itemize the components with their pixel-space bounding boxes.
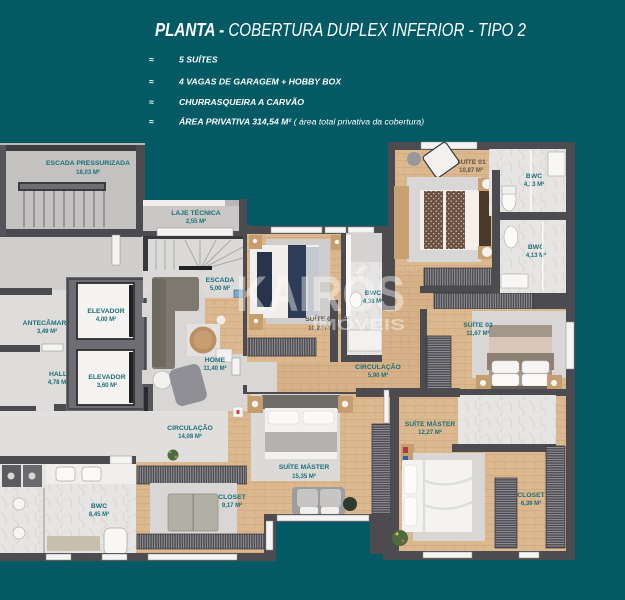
svg-text:11,40 M²: 11,40 M² — [203, 365, 226, 372]
svg-text:BWC: BWC — [526, 173, 542, 180]
svg-text:8,45 M²: 8,45 M² — [89, 511, 109, 518]
svg-text:4,00 M²: 4,00 M² — [96, 316, 116, 323]
svg-text:ESCADA: ESCADA — [206, 277, 235, 284]
svg-text:SUÍTE 01: SUÍTE 01 — [456, 157, 486, 166]
svg-text:ÁREA PRIVATIVA 314,54 M² ( áre: ÁREA PRIVATIVA 314,54 M² ( área total pr… — [178, 117, 424, 127]
svg-text:CLOSET: CLOSET — [517, 492, 545, 499]
svg-text:4,78 M²: 4,78 M² — [48, 379, 68, 386]
svg-text:≈: ≈ — [149, 97, 154, 107]
svg-text:≈: ≈ — [149, 55, 154, 65]
svg-text:KAIRÓS: KAIRÓS — [236, 266, 405, 322]
svg-text:SUÍTE MÁSTER: SUÍTE MÁSTER — [279, 462, 330, 471]
svg-text:BWC: BWC — [528, 244, 544, 251]
svg-text:3,60 M²: 3,60 M² — [97, 382, 117, 389]
svg-text:HALL: HALL — [49, 371, 67, 378]
svg-text:CHURRASQUEIRA A CARVÃO: CHURRASQUEIRA A CARVÃO — [179, 97, 304, 107]
svg-text:ELEVADOR: ELEVADOR — [87, 308, 124, 315]
svg-text:5,90 M²: 5,90 M² — [368, 372, 388, 379]
svg-text:SUÍTE 03: SUÍTE 03 — [463, 320, 493, 329]
svg-text:2,55 M²: 2,55 M² — [186, 218, 206, 225]
svg-text:12,27 M²: 12,27 M² — [418, 429, 442, 436]
svg-text:5,00 M²: 5,00 M² — [210, 285, 230, 292]
svg-text:4,13 M²: 4,13 M² — [524, 181, 544, 188]
svg-text:6,39 M²: 6,39 M² — [521, 500, 541, 507]
svg-text:15,35 M²: 15,35 M² — [292, 473, 316, 480]
svg-text:18,03 M²: 18,03 M² — [76, 169, 100, 176]
svg-text:≈: ≈ — [149, 76, 154, 86]
svg-text:ELEVADOR: ELEVADOR — [88, 374, 125, 381]
svg-text:SUÍTE MÁSTER: SUÍTE MÁSTER — [405, 419, 456, 428]
svg-text:CIRCULAÇÃO: CIRCULAÇÃO — [167, 423, 213, 432]
svg-text:CLOSET: CLOSET — [218, 494, 246, 501]
svg-text:10,87 M²: 10,87 M² — [459, 167, 483, 174]
svg-text:BWC: BWC — [91, 503, 107, 510]
svg-text:LAJE TÉCNICA: LAJE TÉCNICA — [171, 208, 221, 217]
svg-text:ESCADA PRESSURIZADA: ESCADA PRESSURIZADA — [46, 160, 130, 167]
svg-text:CIRCULAÇÃO: CIRCULAÇÃO — [355, 362, 401, 371]
svg-text:HOME: HOME — [205, 357, 226, 364]
svg-text:3,49 M²: 3,49 M² — [37, 328, 57, 335]
svg-text:5 SUÍTES: 5 SUÍTES — [179, 55, 218, 65]
svg-text:14,08 M²: 14,08 M² — [178, 433, 202, 440]
svg-text:9,17 M²: 9,17 M² — [222, 502, 242, 509]
svg-text:4 VAGAS DE GARAGEM + HOBBY BOX: 4 VAGAS DE GARAGEM + HOBBY BOX — [178, 76, 342, 86]
svg-text:11,67 M²: 11,67 M² — [466, 330, 489, 337]
svg-text:ANTECÂMARA: ANTECÂMARA — [23, 318, 72, 327]
svg-text:IMÓVEIS: IMÓVEIS — [312, 315, 405, 334]
svg-text:PLANTA - COBERTURA DUPLEX INFE: PLANTA - COBERTURA DUPLEX INFERIOR - TIP… — [155, 20, 526, 40]
svg-text:≈: ≈ — [149, 117, 154, 127]
